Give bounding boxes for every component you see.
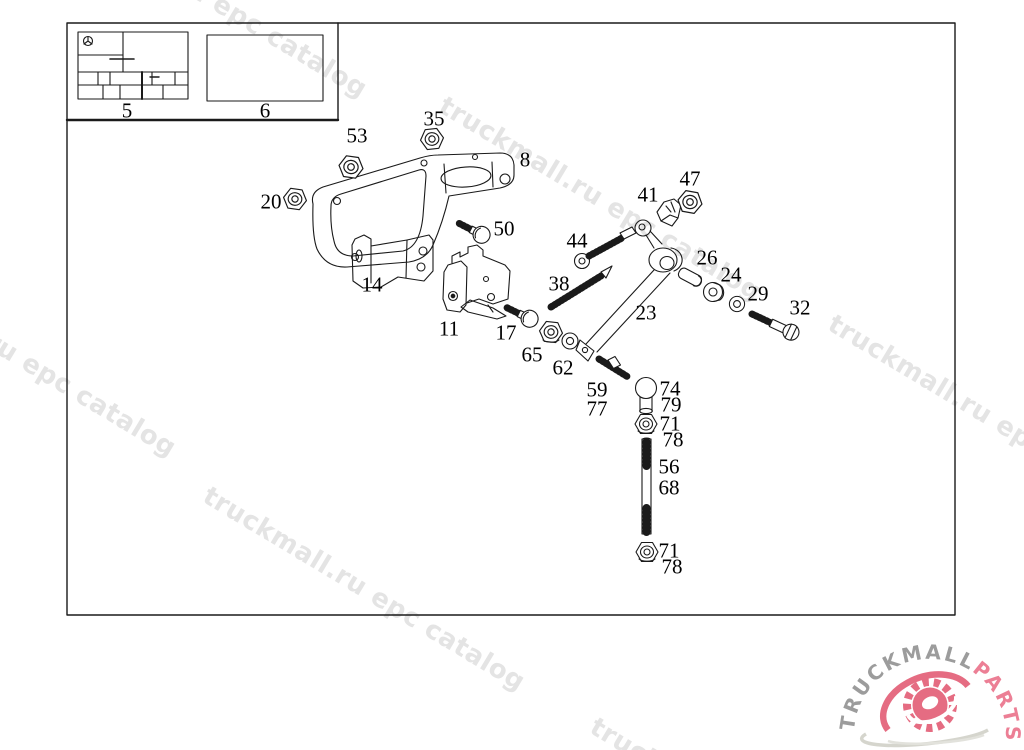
callout-5: 5 [122,101,133,122]
callout-20: 20 [261,192,282,213]
callout-78-upper: 78 [663,430,684,451]
callout-26: 26 [697,248,718,269]
nut-53 [338,155,365,179]
callout-24: 24 [721,265,742,286]
gear-icon [907,682,956,728]
nut-35 [419,128,444,150]
callout-14: 14 [362,275,383,296]
watermark-text: truckmall.ru epc catalog [198,481,531,697]
rod-56-68 [642,438,651,534]
callout-11: 11 [439,319,459,340]
callout-32: 32 [790,298,811,319]
watermark-text: truckmall.ru epc catalog [823,309,1024,525]
ball-stud-59-77 [599,357,628,378]
callout-65: 65 [522,345,543,366]
callout-50: 50 [494,219,515,240]
bolt-50 [455,216,493,246]
nut-71-upper [635,415,657,434]
nut-47 [676,190,703,215]
callout-44: 44 [567,231,588,252]
callout-56: 56 [659,457,680,478]
parts-diagram [0,0,1024,750]
callout-8: 8 [520,150,531,171]
callout-6: 6 [260,101,271,122]
watermark-text: truckmall.ru epc catalog [40,0,373,104]
callout-29: 29 [748,284,769,305]
callout-23: 23 [636,303,657,324]
callout-53: 53 [347,126,368,147]
bracket-11 [443,245,510,319]
callout-17: 17 [496,323,517,344]
callout-38: 38 [549,274,570,295]
callout-68: 68 [659,478,680,499]
nut-20 [282,188,308,211]
nut-65 [538,321,563,343]
callout-41: 41 [638,185,659,206]
catalog-page: truckmall.ru epc catalog truckmall.ru ep… [0,0,1024,750]
data-plate-5 [78,32,188,99]
callout-77: 77 [587,399,608,420]
callout-78-lower: 78 [662,557,683,578]
ball-joint-74-79 [636,378,657,414]
watermark-text: truckmall.ru epc catalog [0,247,181,463]
brand-text-accent: PARTS [968,656,1024,743]
watermark-text: truckmall.ru epc catalog [434,91,767,307]
diagram-frame [67,23,955,615]
callout-47: 47 [680,169,701,190]
callout-35: 35 [424,109,445,130]
callout-62: 62 [553,358,574,379]
part-8-housing [312,153,514,267]
brand-logo: TRUCKMALLPARTS [836,642,1024,750]
washer-62 [562,333,578,349]
nut-71-lower [636,543,658,562]
